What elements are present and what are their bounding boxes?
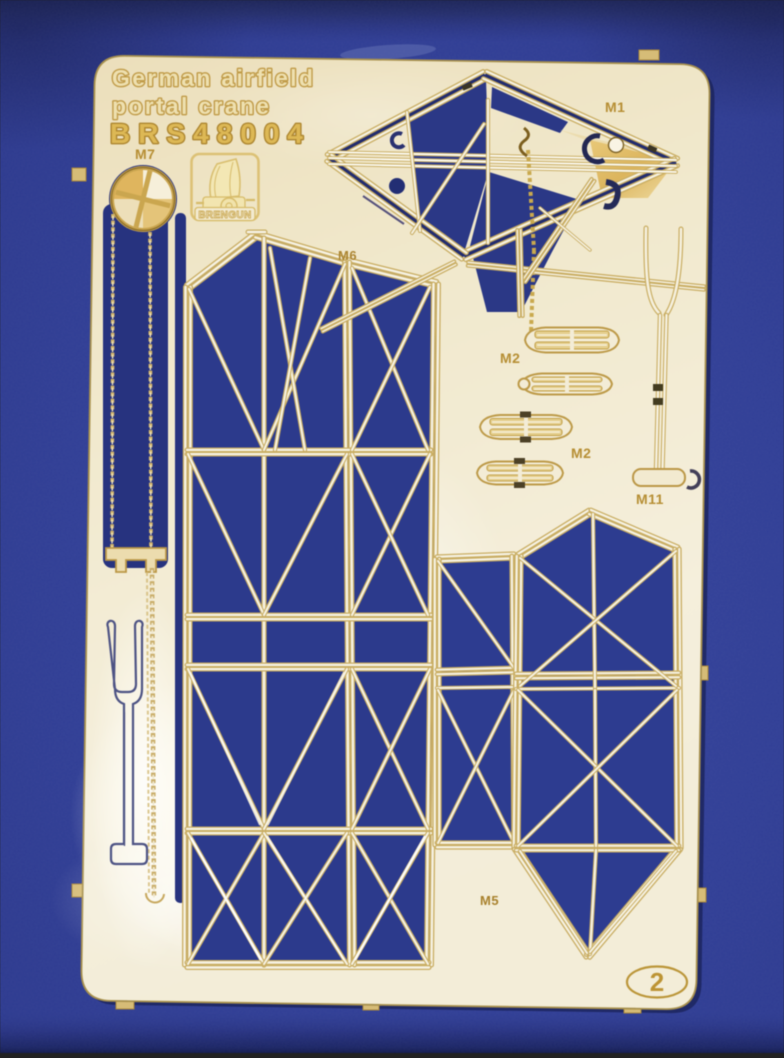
svg-text:M2: M2: [500, 350, 520, 366]
svg-text:M11: M11: [636, 491, 664, 507]
svg-text:German airfield: German airfield: [112, 65, 315, 91]
svg-text:2: 2: [650, 967, 664, 997]
svg-text:portal crane: portal crane: [112, 93, 271, 119]
svg-text:M6: M6: [338, 248, 357, 263]
svg-text:M1: M1: [605, 99, 625, 115]
svg-text:BRS48004: BRS48004: [110, 118, 311, 149]
svg-text:M5: M5: [480, 893, 499, 908]
svg-text:BRENGUN: BRENGUN: [198, 210, 251, 221]
svg-text:M7: M7: [135, 146, 155, 162]
svg-text:M2: M2: [571, 445, 591, 461]
